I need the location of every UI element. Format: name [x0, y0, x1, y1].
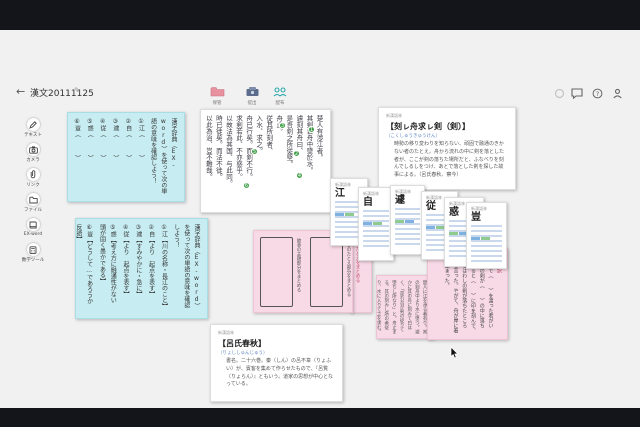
mouse-cursor	[450, 346, 459, 359]
help-icon[interactable]: ?	[591, 87, 603, 99]
vocab-quiz-card[interactable]: 漢字辞典（EX-word）を使って次の単語の意味を確認しよう！ ①江（ ） ②自…	[67, 112, 185, 202]
passage-column: 入水、求之。	[254, 115, 264, 207]
vocab-answer-item: ③遽【すみやかに・急に】	[132, 224, 143, 313]
ryoshi-reading: （りょししゅんじゅう）	[218, 350, 335, 356]
toolbar-item-distribute[interactable]: 配布	[263, 85, 297, 106]
vocab-answers-card[interactable]: 漢字辞典（EX-word）を使って次の単語の意味を確認しよう！ ①江【川の名称・…	[75, 218, 208, 319]
note-canvas: ← 漢文20111125 ✎ 保管 提出 配布	[0, 0, 640, 427]
file-icon	[27, 193, 40, 206]
dict-kanji: 自	[363, 197, 389, 208]
vocab-answer-item: ⑥豈【どうして…であろうか 反語】	[72, 224, 94, 313]
passage-column: 以故法為其国、与此同。	[223, 115, 233, 207]
vocab-answer-item: ⑤惑【考え方に融通性がない 頭が固く愚かである】	[96, 224, 118, 313]
number-stamp: 2	[293, 150, 300, 157]
dict-kanji: 豈	[471, 212, 502, 223]
sidebar-item-file[interactable]: ファイル	[18, 193, 48, 213]
letterbox-bottom	[0, 408, 640, 427]
vocab-answer-item: ④従【より 起点を表す】	[119, 224, 130, 313]
dict-entries	[363, 210, 389, 248]
passage-column: 以此為治、豈不難哉。	[203, 115, 213, 207]
toolbar-item-storage[interactable]: 保管	[200, 85, 234, 106]
vocab-item: ③遽（ ）	[109, 118, 120, 196]
app-window: ← 漢文20111125 ✎ 保管 提出 配布	[0, 30, 640, 408]
dictionary-source-label: 新漢語林	[386, 113, 508, 119]
vocab-answers-prompt: 漢字辞典（EX-word）を使って次の単語の意味を確認しよう！	[170, 224, 201, 313]
number-stamp: 5	[251, 148, 258, 155]
ryoshi-shunju-card[interactable]: 新漢語林 【呂氏春秋】 （りょししゅんじゅう） 書名。二十六巻。秦（しん）の呂不…	[210, 324, 343, 402]
vocab-item: ⑥豈（ ）	[71, 118, 82, 196]
vocab-answer-item: ①江【川の名称・長江のこと】	[158, 224, 169, 313]
number-stamp: 1	[308, 126, 315, 133]
vocab-answer-item: ②自【より 起点を表す】	[145, 224, 156, 313]
chat-icon[interactable]	[571, 87, 583, 99]
passage-column: 楚人有渉江者。	[314, 115, 324, 207]
number-stamp: 6	[243, 182, 250, 189]
summary-box-right-label: 故事のたとえ部分をまとめる	[345, 238, 351, 297]
number-stamp: 4	[296, 172, 303, 179]
dict-entries	[471, 225, 502, 263]
idiom-body: 時勢の移り変わりを知らない、頑固で融通のきかない者のたとえ。舟から流れの中に剣を…	[394, 141, 508, 180]
idiom-meaning-card[interactable]: 新漢語林 【刻ㇾ舟求ㇾ剣（剣）】 （こくしゅうきゅうけん） 時勢の移り変わりを知…	[378, 107, 516, 190]
vocab-item: ①江（ ）	[135, 118, 146, 196]
dictionary-source-label: 新漢語林	[218, 330, 335, 336]
back-button[interactable]: ←	[16, 85, 25, 98]
sidebar-item-mathtools[interactable]: 数学ツール	[18, 243, 48, 263]
dict-card-ji[interactable]: 新漢語林 自	[358, 187, 394, 261]
summary-box-left-label: 故事の主題部分をまとめる	[295, 238, 301, 292]
camera-icon	[27, 143, 40, 156]
ryoshi-body: 書名。二十六巻。秦（しん）の呂不韋（りょふい）が、賓客を集めて作らせたもので、『…	[226, 358, 335, 389]
passage-column: 舟已行矣。而剣不行。	[244, 115, 254, 207]
sidebar-item-link[interactable]: リンク	[18, 168, 48, 188]
passage-column: 従其所刻者、	[264, 115, 274, 207]
passage-column: 求剣若此、不亦惑乎。	[233, 115, 243, 207]
dict-entries	[395, 208, 420, 246]
kakikudashi-text: 楚人に江を渉る者有り。其の剣舟中より水に墜つ。遽かに其の舟に刻みて曰はく、「是れ…	[377, 276, 433, 338]
idiom-reading: （こくしゅうきゅうけん）	[386, 133, 508, 139]
dict-card-kyo[interactable]: 新漢語林 遽	[390, 185, 425, 255]
edit-title-icon[interactable]: ✎	[74, 86, 81, 95]
vocab-item: ②自（ ）	[122, 118, 133, 196]
number-stamp: 3	[279, 122, 286, 129]
vocab-item: ④従（ ）	[96, 118, 107, 196]
passage-column: 是吾剣之所従墜。	[284, 115, 294, 207]
sidebar-item-exword[interactable]: EX-word	[18, 218, 48, 237]
dict-kanji: 遽	[395, 195, 420, 206]
idiom-title: 【刻ㇾ舟求ㇾ剣（剣）】	[386, 121, 508, 132]
profile-icon[interactable]	[611, 87, 623, 99]
paperclip-icon	[27, 168, 40, 181]
vocab-quiz-prompt: 漢字辞典（EX-word）を使って次の単語の意味を確認しよう！	[147, 118, 178, 196]
summary-box-right[interactable]	[310, 237, 343, 307]
svg-text:?: ?	[595, 89, 598, 97]
ryoshi-title: 【呂氏春秋】	[218, 338, 335, 349]
passage-column: 遽刻其舟曰、	[294, 115, 304, 207]
page-title[interactable]: 漢文20111125	[30, 86, 94, 99]
text-icon	[27, 118, 40, 131]
sidebar-item-text[interactable]: テキスト	[18, 118, 48, 138]
passage-card[interactable]: 楚人有渉江者。 其剣自舟中墜於水。 遽刻其舟曰、 是吾剣之所従墜。 舟止。 従其…	[200, 109, 331, 213]
dictionary-icon	[27, 218, 40, 231]
folder-icon	[200, 85, 234, 98]
sync-icon[interactable]	[553, 87, 565, 99]
vocab-item: ⑤惑（ ）	[83, 118, 94, 196]
people-icon	[263, 85, 297, 98]
summary-box-left[interactable]	[260, 237, 293, 307]
passage-column: 時已徙矣。而法不徙。	[213, 115, 223, 207]
kakikudashi-card[interactable]: 楚人に江を渉る者有り。其の剣舟中より水に墜つ。遽かに其の舟に刻みて曰はく、「是れ…	[376, 275, 434, 339]
sidebar-item-camera[interactable]: カメラ	[18, 143, 48, 163]
letterbox-top	[0, 0, 640, 30]
calculator-icon	[27, 243, 40, 256]
dict-card-ani[interactable]: 新漢語林 豈	[466, 202, 507, 269]
